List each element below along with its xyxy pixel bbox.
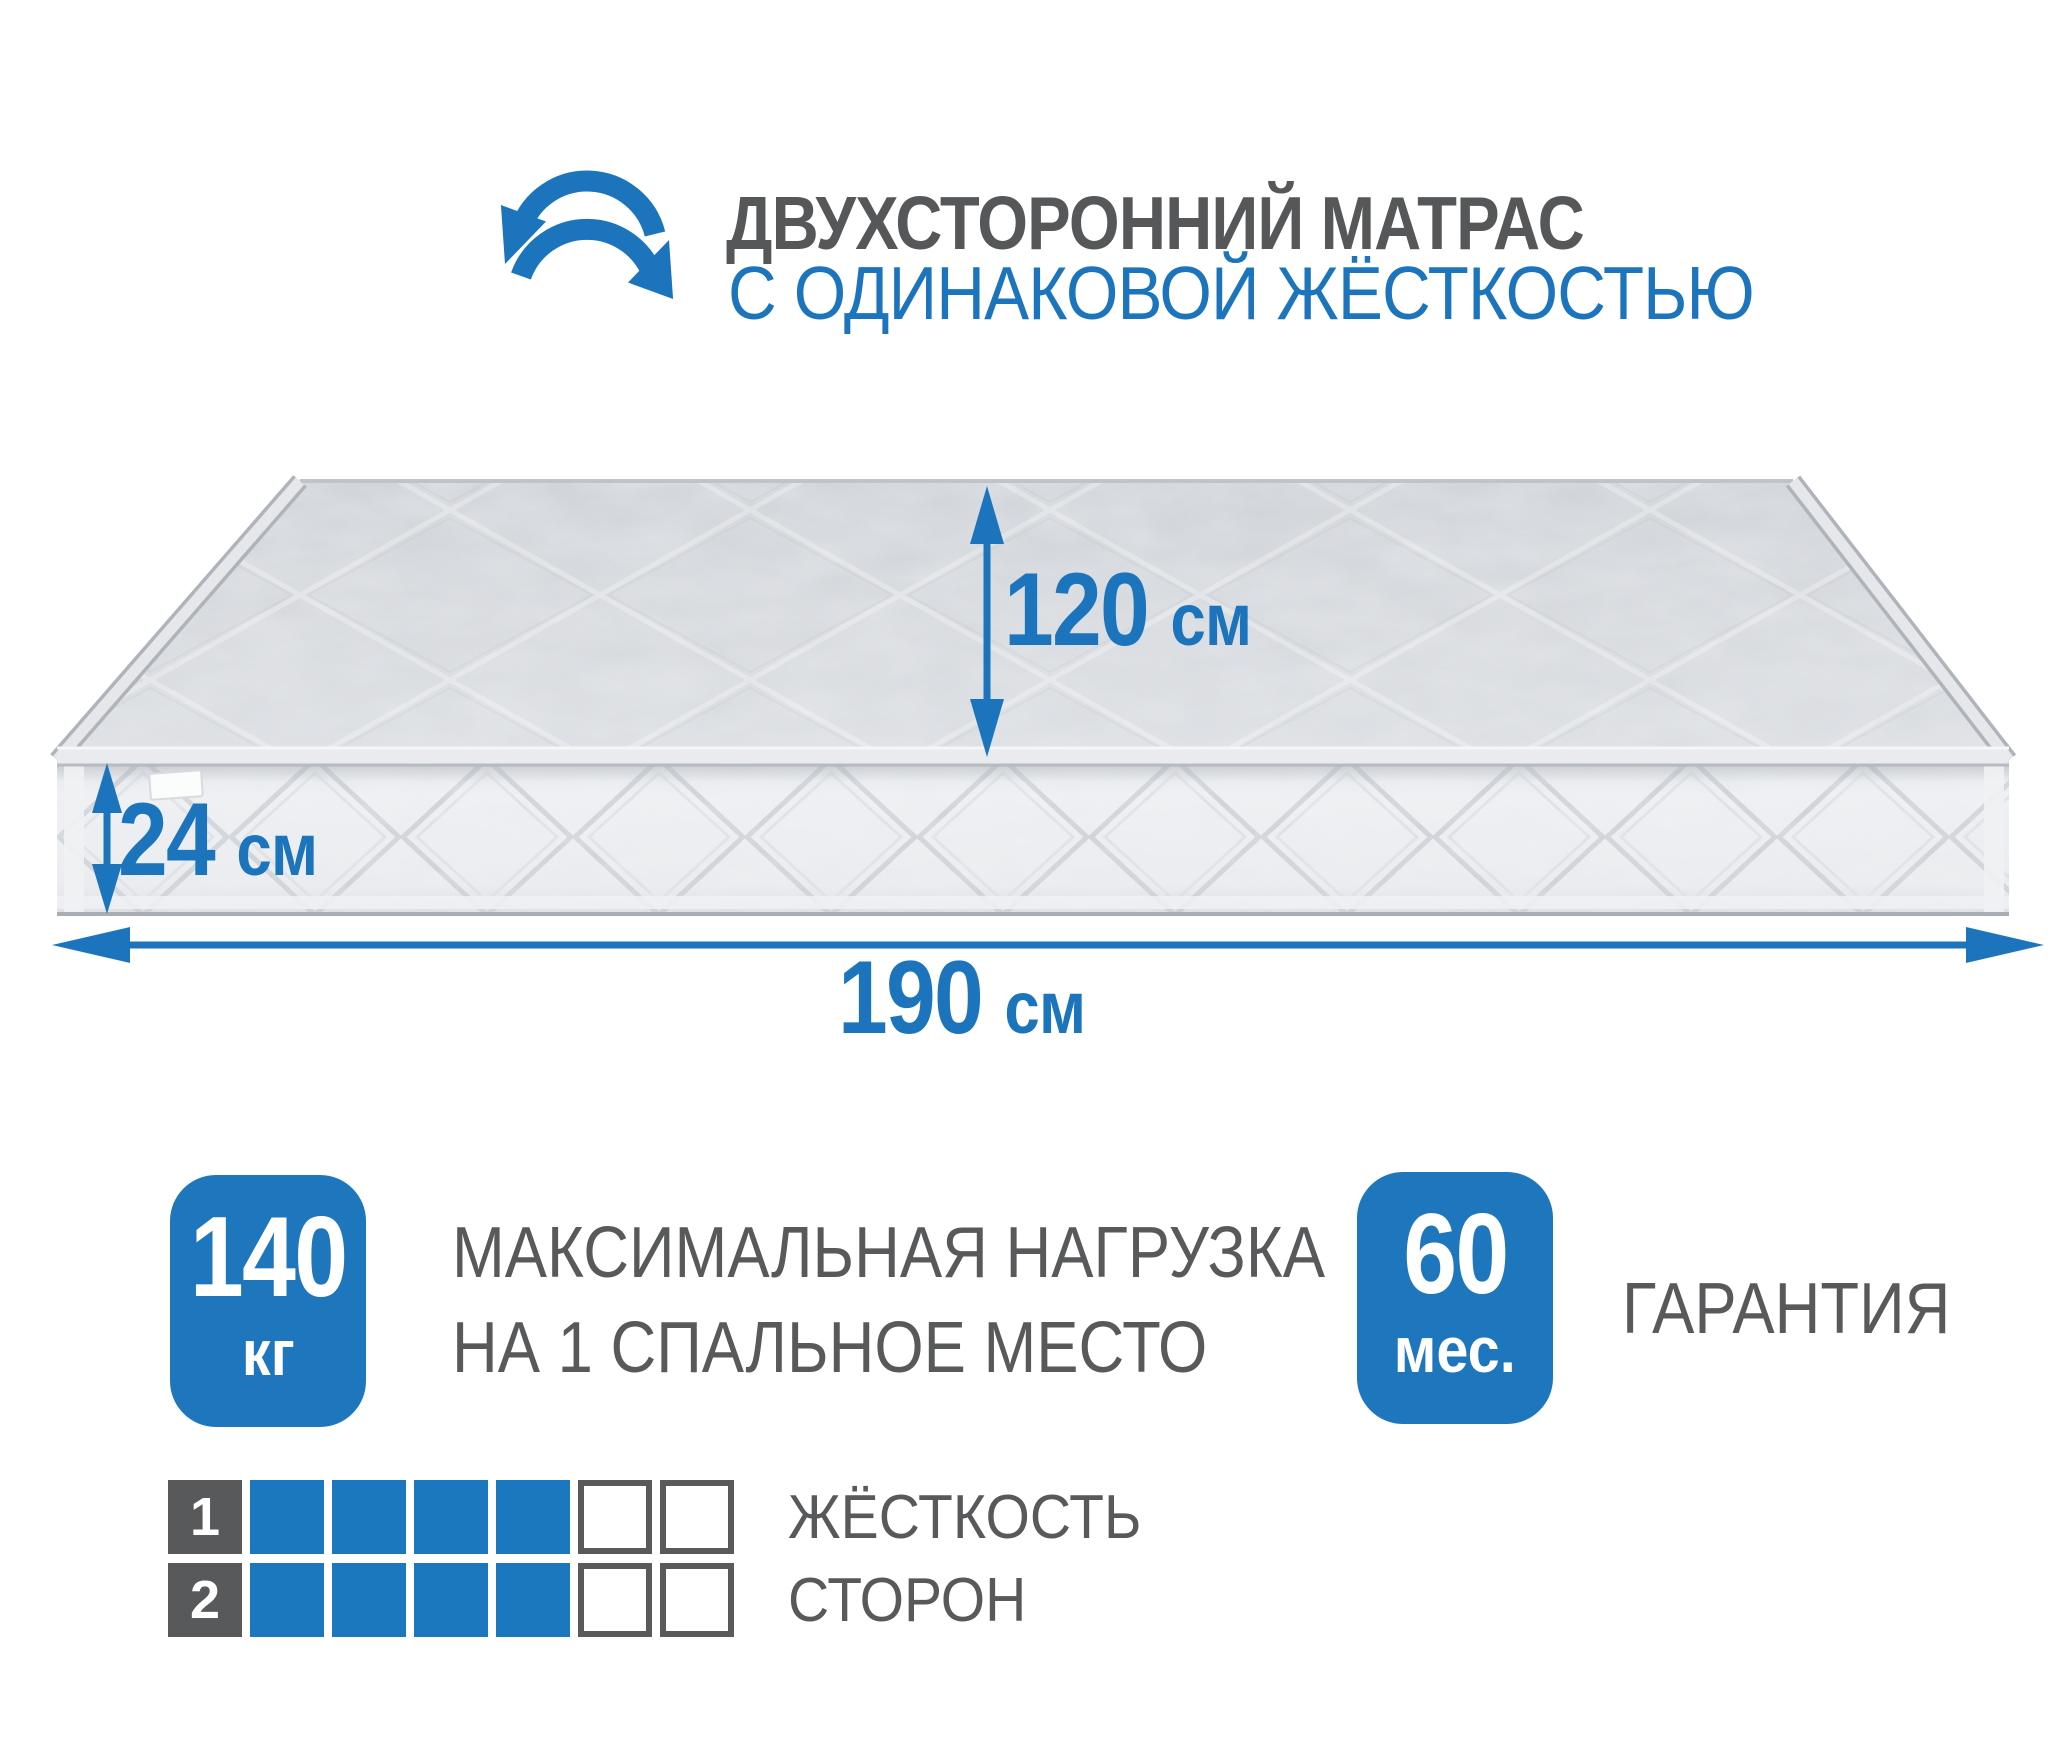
hardness-cell-empty — [660, 1563, 734, 1637]
hardness-grid: 1 2 — [168, 1480, 734, 1637]
hardness-label-line2: СТОРОН — [788, 1563, 1026, 1637]
length-unit: см — [1004, 971, 1085, 1045]
max-load-label-line1: МАКСИМАЛЬНАЯ НАГРУЗКА — [452, 1206, 1325, 1301]
hardness-cell-empty — [578, 1480, 652, 1554]
hardness-cell-filled — [250, 1480, 324, 1554]
max-load-badge: 140 кг — [170, 1175, 366, 1427]
hardness-row-1: 1 — [168, 1480, 734, 1554]
hardness-cell-filled — [496, 1480, 570, 1554]
mattress-front-face — [40, 747, 2030, 930]
hardness-row-2: 2 — [168, 1563, 734, 1637]
warranty-unit: мес. — [1394, 1318, 1516, 1382]
depth-value: 120 — [1004, 558, 1148, 662]
warranty-label: ГАРАНТИЯ — [1622, 1262, 1950, 1357]
height-value: 24 — [118, 788, 214, 892]
height-dimension: 24 см — [118, 788, 317, 892]
hardness-cell-filled — [332, 1563, 406, 1637]
hardness-cell-filled — [414, 1480, 488, 1554]
length-value: 190 — [838, 946, 982, 1050]
hardness-row-number: 2 — [168, 1563, 242, 1637]
hardness-cell-empty — [578, 1563, 652, 1637]
hardness-row-number: 1 — [168, 1480, 242, 1554]
hardness-cell-filled — [332, 1480, 406, 1554]
warranty-badge: 60 мес. — [1357, 1172, 1553, 1424]
infographic-mattress: ДВУХСТОРОННИЙ МАТРАС С ОДИНАКОВОЙ ЖЁСТКО… — [0, 0, 2048, 1757]
hardness-cell-filled — [250, 1563, 324, 1637]
depth-unit: см — [1170, 583, 1251, 657]
max-load-unit: кг — [242, 1321, 295, 1385]
hardness-label-line1: ЖЁСТКОСТЬ — [788, 1480, 1141, 1554]
warranty-value: 60 — [1403, 1198, 1507, 1312]
max-load-label-line2: НА 1 СПАЛЬНОЕ МЕСТО — [452, 1301, 1325, 1396]
hardness-cell-empty — [660, 1480, 734, 1554]
max-load-value: 140 — [190, 1201, 347, 1315]
length-dimension: 190 см — [838, 946, 1085, 1050]
max-load-label: МАКСИМАЛЬНАЯ НАГРУЗКА НА 1 СПАЛЬНОЕ МЕСТ… — [452, 1206, 1325, 1396]
hardness-cell-filled — [496, 1563, 570, 1637]
depth-dimension: 120 см — [1004, 558, 1251, 662]
hardness-cell-filled — [414, 1563, 488, 1637]
height-unit: см — [236, 813, 317, 887]
